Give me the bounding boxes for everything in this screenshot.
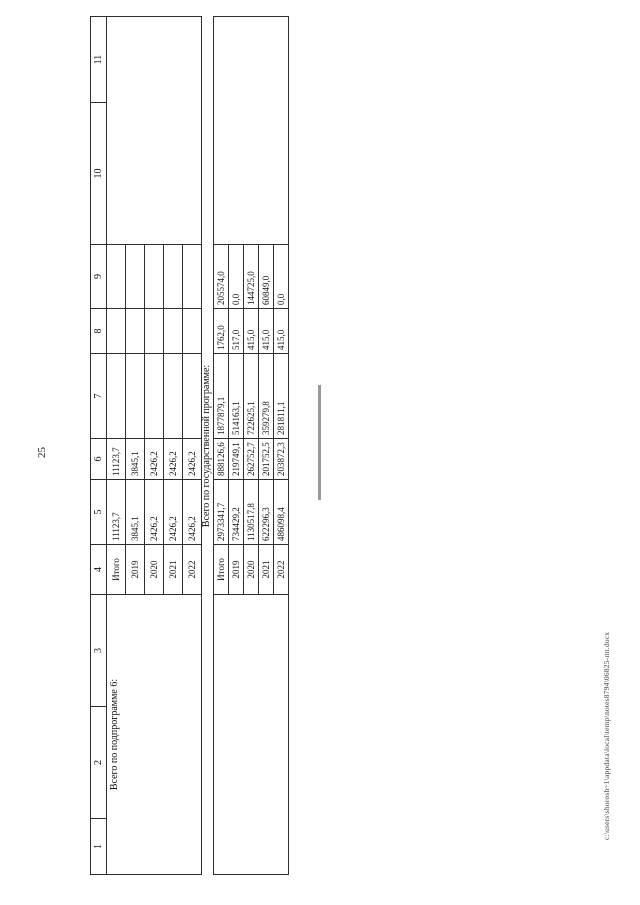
- empty-cell: [107, 354, 126, 439]
- empty-cell: [183, 354, 202, 439]
- header-cell: 2: [91, 707, 107, 819]
- value-cell: 60849,0: [259, 244, 274, 308]
- header-cell: 5: [91, 480, 107, 545]
- empty-cell: [214, 16, 289, 244]
- period-cell: 2019: [126, 545, 145, 595]
- value-cell: 219749,1: [229, 438, 244, 479]
- value-cell: 2426,2: [145, 480, 164, 545]
- value-cell: 2426,2: [164, 480, 183, 545]
- value-cell: 2973341,7: [214, 479, 229, 544]
- value-cell: 486098,4: [274, 479, 289, 544]
- value-cell: 281811,1: [274, 353, 289, 438]
- value-cell: 734429,2: [229, 479, 244, 544]
- rotated-sheet: 25 1 2 3 4 5 6 7 8 9 10 11: [0, 0, 640, 905]
- table-row: Итого 2973341,7 888126,6 1877879,1 1762,…: [214, 16, 229, 874]
- value-cell: 11123,7: [107, 480, 126, 545]
- value-cell: 415,0: [259, 308, 274, 353]
- period-cell: Итого: [107, 545, 126, 595]
- header-cell: 10: [91, 103, 107, 245]
- empty-cell: [164, 245, 183, 309]
- value-cell: 262752,7: [244, 438, 259, 479]
- value-cell: 11123,7: [107, 439, 126, 480]
- value-cell: 622296,3: [259, 479, 274, 544]
- empty-cell: [164, 354, 183, 439]
- period-cell: 2022: [274, 544, 289, 594]
- value-cell: 201752,5: [259, 438, 274, 479]
- value-cell: 3845,1: [126, 439, 145, 480]
- empty-cell: [145, 309, 164, 354]
- value-cell: 0,0: [274, 244, 289, 308]
- period-cell: Итого: [214, 544, 229, 594]
- value-cell: 2426,2: [164, 439, 183, 480]
- value-cell: 2426,2: [183, 439, 202, 480]
- empty-cell: [126, 245, 145, 309]
- empty-cell: [183, 309, 202, 354]
- value-cell: 415,0: [244, 308, 259, 353]
- header-cell: 8: [91, 309, 107, 354]
- header-cell: 1: [91, 819, 107, 875]
- document-page: 25 1 2 3 4 5 6 7 8 9 10 11: [0, 0, 640, 905]
- empty-cell: [126, 354, 145, 439]
- value-cell: 514163,1: [229, 353, 244, 438]
- value-cell: 1877879,1: [214, 353, 229, 438]
- footer-path: c:\users\shorosh~1\appdata\local\temp\no…: [602, 440, 611, 840]
- value-cell: 205574,0: [214, 244, 229, 308]
- empty-cell: [164, 309, 183, 354]
- value-cell: 3845,1: [126, 480, 145, 545]
- header-cell: 7: [91, 354, 107, 439]
- empty-cell: [107, 17, 202, 245]
- value-cell: 1130517,8: [244, 479, 259, 544]
- value-cell: 203872,3: [274, 438, 289, 479]
- footnote-separator: [318, 385, 321, 500]
- value-cell: 359279,8: [259, 353, 274, 438]
- value-cell: 722625,1: [244, 353, 259, 438]
- table-row: Всего по подпрограмме 6: Итого 11123,7 1…: [107, 17, 126, 875]
- period-cell: 2021: [164, 545, 183, 595]
- empty-cell: [183, 245, 202, 309]
- page-number: 25: [36, 0, 48, 905]
- value-cell: 517,0: [229, 308, 244, 353]
- table-header-row: 1 2 3 4 5 6 7 8 9 10 11: [91, 17, 107, 875]
- period-cell: 2022: [183, 545, 202, 595]
- header-cell: 9: [91, 245, 107, 309]
- value-cell: 2426,2: [145, 439, 164, 480]
- period-cell: 2020: [244, 544, 259, 594]
- value-cell: 415,0: [274, 308, 289, 353]
- header-cell: 6: [91, 439, 107, 480]
- period-cell: 2019: [229, 544, 244, 594]
- subprogram-total-label: Всего по подпрограмме 6:: [107, 595, 202, 875]
- value-cell: 1762,0: [214, 308, 229, 353]
- empty-cell: [145, 354, 164, 439]
- period-cell: 2020: [145, 545, 164, 595]
- subprogram-table: 1 2 3 4 5 6 7 8 9 10 11 Всего по подпрог…: [90, 16, 202, 875]
- empty-cell: [107, 309, 126, 354]
- value-cell: 144725,0: [244, 244, 259, 308]
- header-cell: 3: [91, 595, 107, 707]
- header-cell: 11: [91, 17, 107, 103]
- program-table: Итого 2973341,7 888126,6 1877879,1 1762,…: [213, 16, 289, 875]
- empty-cell: [126, 309, 145, 354]
- value-cell: 2426,2: [183, 480, 202, 545]
- value-cell: 888126,6: [214, 438, 229, 479]
- empty-cell: [145, 245, 164, 309]
- period-cell: 2021: [259, 544, 274, 594]
- empty-cell: [107, 245, 126, 309]
- program-total-divider: Всего по государственной программе:: [200, 17, 213, 875]
- header-cell: 4: [91, 545, 107, 595]
- value-cell: 0,0: [229, 244, 244, 308]
- empty-cell: [214, 594, 289, 874]
